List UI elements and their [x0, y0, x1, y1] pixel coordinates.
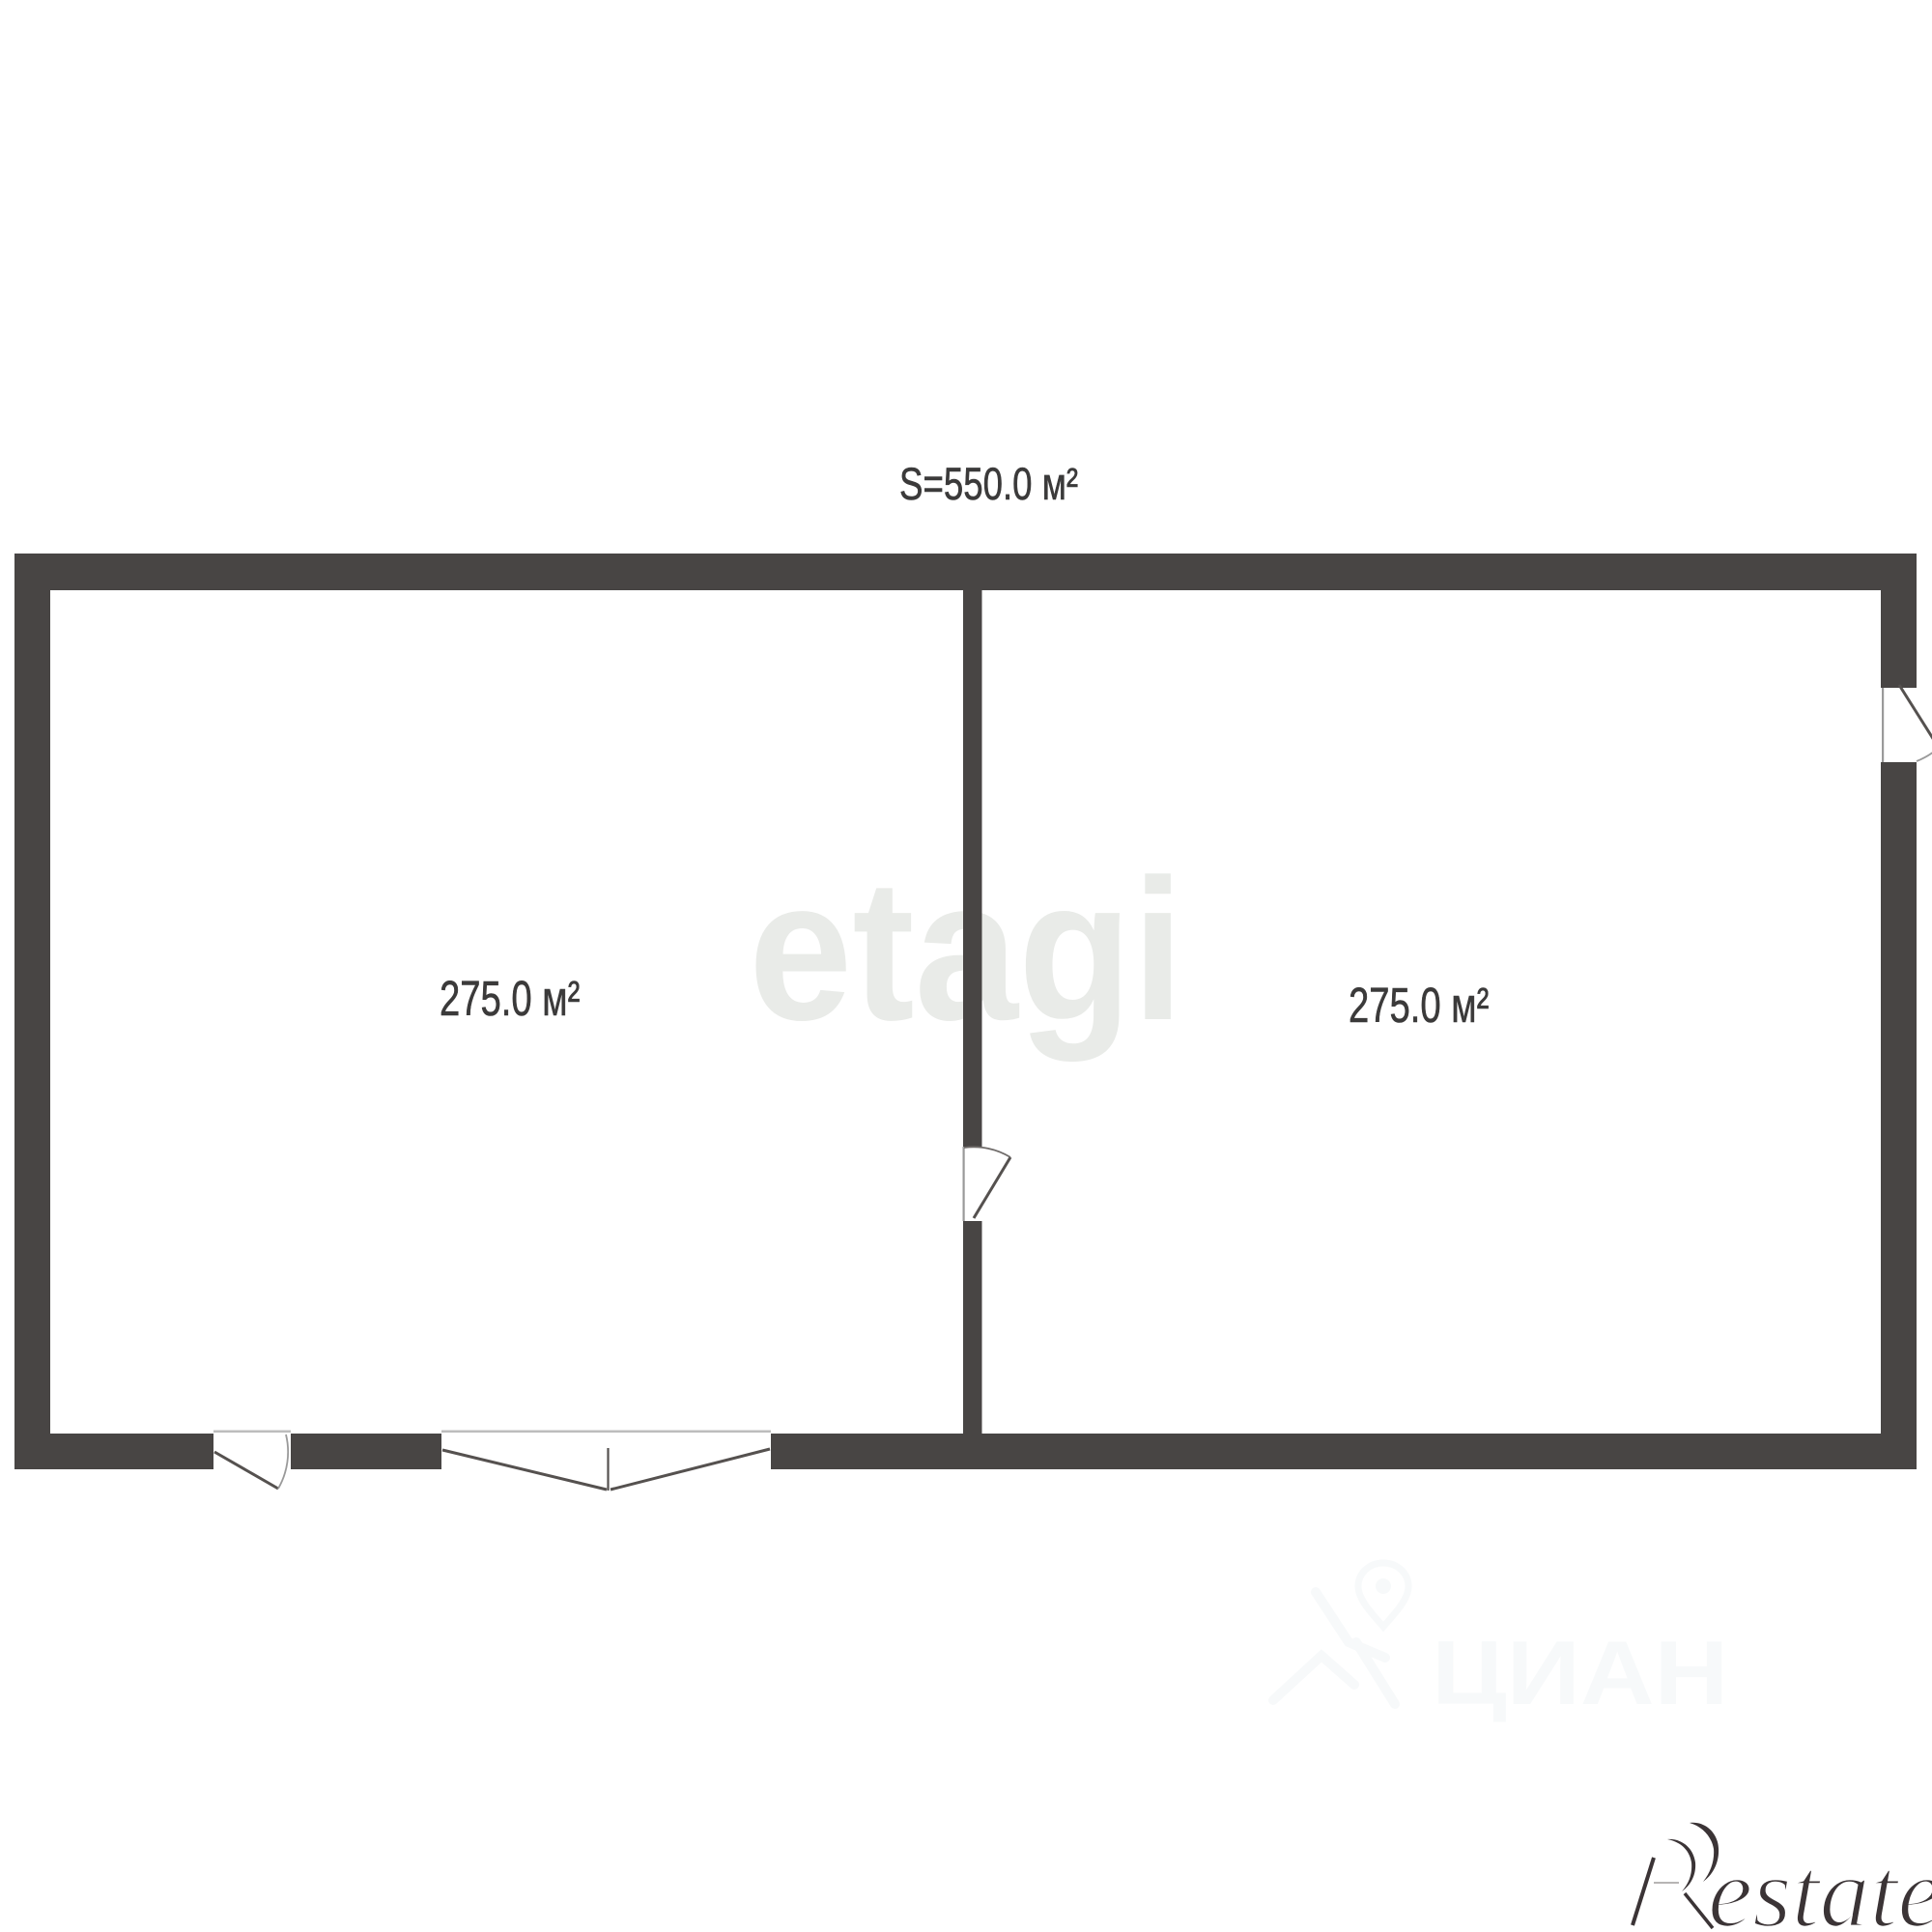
- svg-text:275.0 м²: 275.0 м²: [440, 971, 580, 1027]
- svg-text:275.0 м²: 275.0 м²: [1349, 978, 1489, 1034]
- svg-text:estate: estate: [1708, 1837, 1932, 1932]
- svg-text:ЦИАН: ЦИАН: [1432, 1623, 1728, 1724]
- svg-text:S=550.0 м²: S=550.0 м²: [899, 459, 1078, 509]
